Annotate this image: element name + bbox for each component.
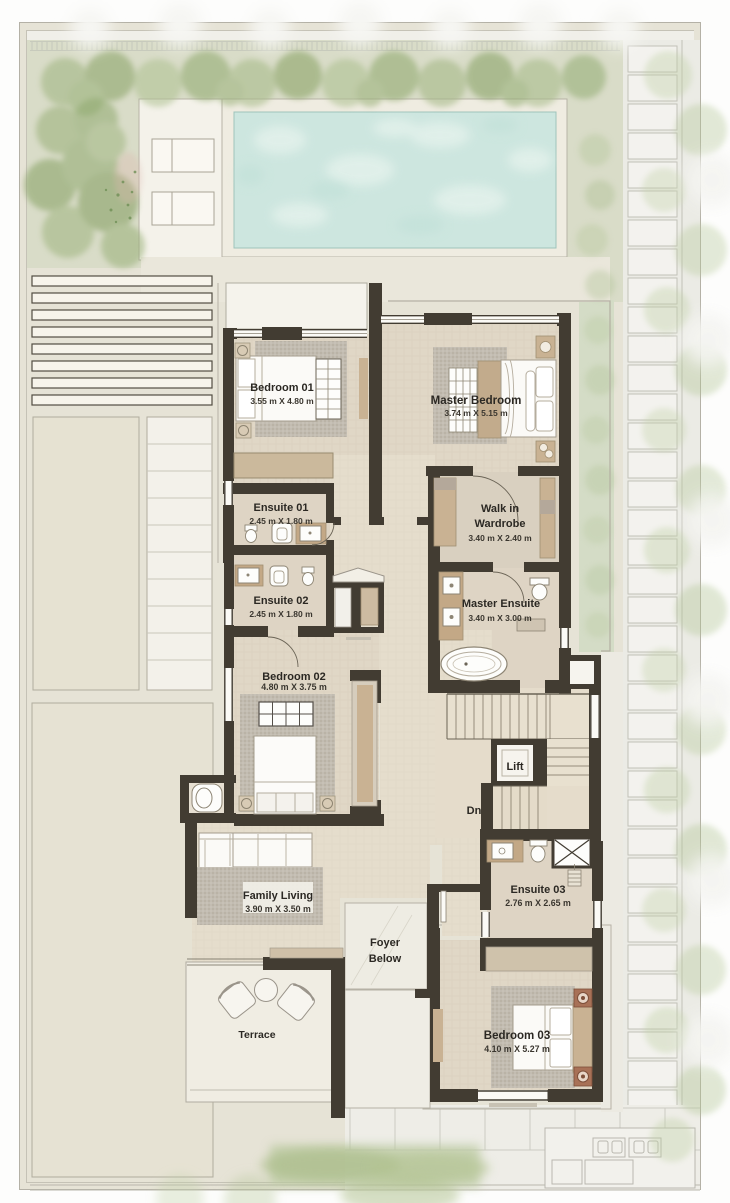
svg-text:Terrace: Terrace [238, 1029, 275, 1041]
svg-text:Dn: Dn [467, 805, 482, 817]
svg-text:Master Ensuite: Master Ensuite [462, 598, 540, 610]
svg-text:Lift: Lift [506, 761, 523, 773]
svg-text:3.74 m X 5.15 m: 3.74 m X 5.15 m [444, 408, 508, 418]
svg-text:4.10 m X 5.27 m: 4.10 m X 5.27 m [484, 1044, 550, 1054]
svg-text:Bedroom 01: Bedroom 01 [250, 382, 314, 394]
svg-text:2.45 m X 1.80 m: 2.45 m X 1.80 m [249, 516, 313, 526]
svg-text:Wardrobe: Wardrobe [475, 518, 526, 530]
svg-text:Ensuite 02: Ensuite 02 [253, 595, 308, 607]
svg-text:3.55 m X 4.80 m: 3.55 m X 4.80 m [250, 396, 314, 406]
svg-text:3.40 m X 3.00 m: 3.40 m X 3.00 m [468, 613, 532, 623]
svg-text:2.45 m X 1.80 m: 2.45 m X 1.80 m [249, 609, 313, 619]
svg-text:3.40 m X 2.40 m: 3.40 m X 2.40 m [468, 533, 532, 543]
svg-text:Ensuite 01: Ensuite 01 [253, 502, 308, 514]
svg-text:3.90 m X 3.50 m: 3.90 m X 3.50 m [245, 904, 311, 914]
svg-text:Foyer: Foyer [370, 937, 401, 949]
svg-text:Family Living: Family Living [243, 890, 313, 902]
svg-text:2.76 m X 2.65 m: 2.76 m X 2.65 m [505, 898, 571, 908]
svg-text:Master Bedroom: Master Bedroom [431, 395, 522, 407]
svg-text:Walk in: Walk in [481, 503, 519, 515]
svg-text:Ensuite 03: Ensuite 03 [510, 884, 565, 896]
svg-text:Below: Below [369, 953, 402, 965]
svg-text:Bedroom 03: Bedroom 03 [484, 1030, 550, 1042]
svg-text:4.80 m X 3.75 m: 4.80 m X 3.75 m [261, 682, 327, 692]
